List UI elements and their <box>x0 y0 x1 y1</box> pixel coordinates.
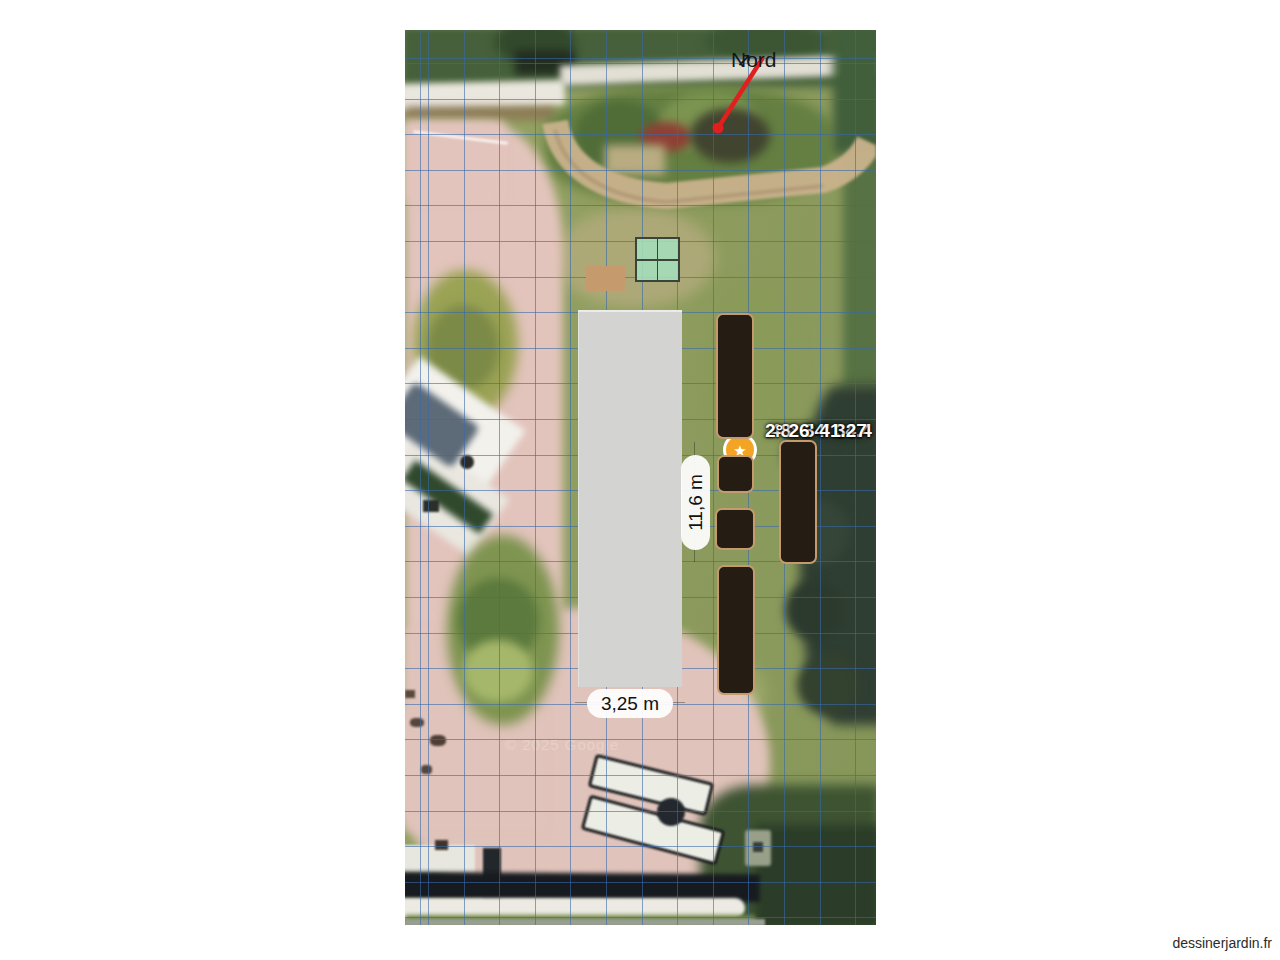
planter-grid[interactable] <box>635 237 680 282</box>
shed-rectangle[interactable] <box>578 310 682 687</box>
green-mound <box>463 640 533 702</box>
vegetable-bed[interactable] <box>779 440 817 564</box>
bollard <box>435 840 448 850</box>
vegetable-bed[interactable] <box>717 565 755 695</box>
width-measurement-label[interactable]: 3,25 m <box>587 689 673 718</box>
vegetable-bed[interactable] <box>717 455 754 493</box>
longitude-text: 2° 26' 41.27 <box>765 417 867 445</box>
north-arrow-glyph-icon: ↗ <box>736 48 752 71</box>
tree-shadow <box>797 655 859 715</box>
bollard <box>421 765 432 774</box>
garden-designer-page: © 2025 Google 48° 34' 34.4 2° 26' 41.27 … <box>0 0 1280 960</box>
map-canvas[interactable]: © 2025 Google 48° 34' 34.4 2° 26' 41.27 … <box>405 30 876 925</box>
planter-pair[interactable] <box>586 266 625 291</box>
bollard <box>410 718 424 727</box>
height-measurement-label[interactable]: 11,6 m <box>681 455 710 550</box>
roof-detail <box>423 500 439 512</box>
bollard <box>430 735 446 746</box>
vegetable-bed[interactable] <box>715 508 755 550</box>
table-dot <box>657 798 685 826</box>
vegetable-bed[interactable] <box>716 313 754 439</box>
dark-shrub <box>690 108 770 163</box>
roof-detail <box>460 455 474 469</box>
bollard <box>405 690 415 698</box>
map-credit: © 2025 Google <box>505 736 619 753</box>
tree-shadow <box>843 150 876 390</box>
tree-shadow <box>833 30 876 155</box>
soil-patch <box>605 145 665 175</box>
utility-box-dot <box>753 842 763 852</box>
site-watermark: dessinerjardin.fr <box>1172 935 1272 951</box>
bottom-gray-strip <box>405 919 765 925</box>
wall-shadow <box>405 106 555 120</box>
tree-shadow <box>785 580 843 640</box>
tree-corner <box>755 825 876 925</box>
